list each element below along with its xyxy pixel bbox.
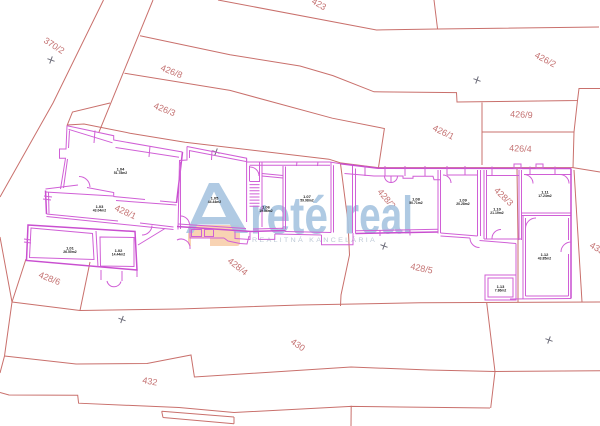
svg-text:14.44m2: 14.44m2: [112, 253, 125, 257]
svg-text:17.24m2: 17.24m2: [538, 194, 551, 198]
svg-text:26.50m2: 26.50m2: [63, 250, 76, 254]
svg-text:20.28m2: 20.28m2: [456, 202, 469, 206]
svg-text:21.19m2: 21.19m2: [490, 211, 503, 215]
svg-text:43.85m2: 43.85m2: [538, 257, 551, 261]
svg-text:7.86m2: 7.86m2: [495, 289, 507, 293]
svg-text:44.44m2: 44.44m2: [208, 200, 221, 204]
svg-text:19.56m2: 19.56m2: [259, 209, 272, 213]
svg-text:51.78m2: 51.78m2: [114, 171, 127, 175]
svg-text:426/9: 426/9: [510, 109, 533, 120]
svg-text:43.04m2: 43.04m2: [93, 209, 106, 213]
svg-text:426/4: 426/4: [509, 143, 532, 154]
svg-text:50.71m2: 50.71m2: [409, 201, 422, 205]
svg-text:59.98m2: 59.98m2: [300, 199, 313, 203]
